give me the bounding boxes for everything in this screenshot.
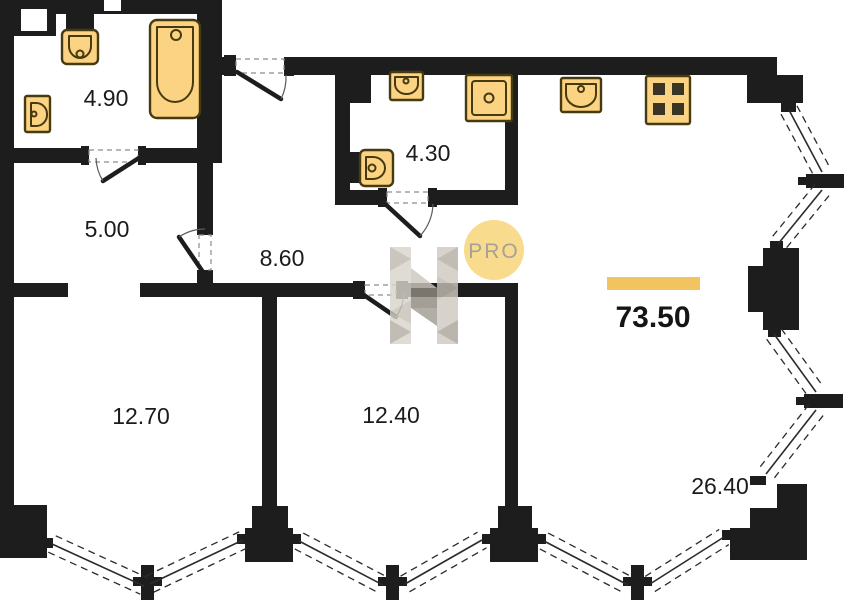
entrance-door-leaf xyxy=(237,72,281,99)
door-opening xyxy=(387,192,428,203)
window-mullion xyxy=(804,394,843,408)
pillar xyxy=(730,528,750,560)
sink-icon xyxy=(390,72,423,100)
sink-icon xyxy=(25,96,50,132)
window-segment xyxy=(797,106,830,168)
kitchen-sink-icon xyxy=(561,78,601,112)
wall xyxy=(335,190,381,205)
window-segment xyxy=(655,545,729,592)
window-segment xyxy=(774,334,816,392)
pro-badge-label: PRO xyxy=(468,240,520,263)
window-segment xyxy=(56,536,148,578)
window-segment xyxy=(789,110,822,172)
window-segment xyxy=(785,196,829,250)
wall xyxy=(0,0,14,510)
window-segment xyxy=(52,544,144,586)
window-segment xyxy=(778,190,822,244)
pillar xyxy=(252,506,288,530)
window-segment xyxy=(544,541,628,585)
window-nib xyxy=(796,397,804,405)
floor-plan-canvas: PRO 4.90 5.00 8.60 4.30 12.70 12.40 26.4… xyxy=(0,0,845,600)
window-segment xyxy=(548,533,632,577)
wall xyxy=(335,75,350,205)
pillar xyxy=(498,506,532,530)
room-area-label: 12.40 xyxy=(362,402,420,428)
door-swing-arc xyxy=(420,204,433,236)
window-segment xyxy=(781,114,814,176)
wall xyxy=(14,283,68,297)
window-segment xyxy=(781,329,823,387)
window-nib xyxy=(798,177,806,185)
wall xyxy=(431,190,518,205)
window-segment xyxy=(771,184,815,238)
window-nib xyxy=(722,530,730,540)
window-segment xyxy=(401,532,478,576)
window-mullion xyxy=(631,565,644,600)
window-segment xyxy=(766,410,816,474)
shower-icon xyxy=(466,75,512,121)
room-area-label: 26.40 xyxy=(691,473,749,499)
wall xyxy=(286,57,777,75)
h-logo-watermark xyxy=(390,247,458,344)
window-segment xyxy=(540,549,624,593)
window-segment xyxy=(767,339,809,397)
pillar xyxy=(490,528,538,562)
wall xyxy=(142,148,222,163)
room-area-label: 5.00 xyxy=(85,216,130,242)
window-segment xyxy=(773,416,823,480)
window-nib xyxy=(750,476,766,485)
bathroom2-door-leaf xyxy=(383,202,420,236)
room-area-label: 4.30 xyxy=(406,140,451,166)
stove-icon xyxy=(646,76,690,124)
window-segment xyxy=(150,540,243,584)
window-segment xyxy=(295,549,379,593)
door-opening xyxy=(236,59,284,73)
bathtub-icon xyxy=(150,20,200,118)
window-nib xyxy=(644,577,652,586)
bay-windows xyxy=(48,106,830,594)
room-area-label: 12.70 xyxy=(112,403,170,429)
pillar xyxy=(747,75,803,103)
pillar xyxy=(748,266,763,312)
hall-door-leaf xyxy=(179,237,205,275)
door-jamb xyxy=(224,55,236,76)
bathroom-door-leaf xyxy=(103,156,142,181)
window-segment xyxy=(154,548,247,592)
window-nib xyxy=(293,534,301,544)
door-jamb xyxy=(284,57,294,76)
window-segment xyxy=(405,540,482,584)
floor-plan: PRO 4.90 5.00 8.60 4.30 12.70 12.40 26.4… xyxy=(0,0,845,600)
room-area-label: 8.60 xyxy=(260,245,305,271)
wall xyxy=(197,163,213,225)
window-segment xyxy=(759,404,809,468)
pillar xyxy=(245,528,293,562)
door-jamb xyxy=(81,146,89,165)
vent-shaft xyxy=(104,0,121,11)
window-segment xyxy=(299,541,383,585)
total-area-block: 73.50 xyxy=(607,277,700,334)
pro-badge: PRO xyxy=(464,220,524,280)
wall xyxy=(0,148,85,163)
window-nib xyxy=(482,534,490,544)
toilet-icon xyxy=(62,30,98,64)
room-area-label: 4.90 xyxy=(84,85,129,111)
wall xyxy=(350,75,371,103)
wall xyxy=(140,283,353,297)
total-area-value: 73.50 xyxy=(615,301,690,334)
window-mullion xyxy=(806,174,844,188)
door-jamb xyxy=(197,225,213,235)
window-segment xyxy=(409,548,486,592)
total-area-accent-bar xyxy=(607,277,700,290)
window-segment xyxy=(645,529,719,576)
toilet-icon xyxy=(360,150,393,186)
pillar xyxy=(750,508,777,560)
window-nib xyxy=(770,241,783,248)
window-nib xyxy=(399,577,407,586)
vent-shaft xyxy=(21,9,47,31)
window-segment xyxy=(48,552,140,594)
window-nib xyxy=(538,534,546,544)
door-swing-arc xyxy=(281,75,286,99)
door-opening xyxy=(199,235,211,270)
window-segment xyxy=(650,537,724,584)
window-mullion xyxy=(386,565,399,600)
window-segment xyxy=(146,532,239,576)
pillar xyxy=(763,248,799,330)
window-segment xyxy=(303,533,387,577)
wall xyxy=(262,297,277,510)
pillar xyxy=(0,505,47,558)
wall xyxy=(505,297,518,510)
pillar xyxy=(777,484,807,560)
window-nib xyxy=(45,538,53,548)
